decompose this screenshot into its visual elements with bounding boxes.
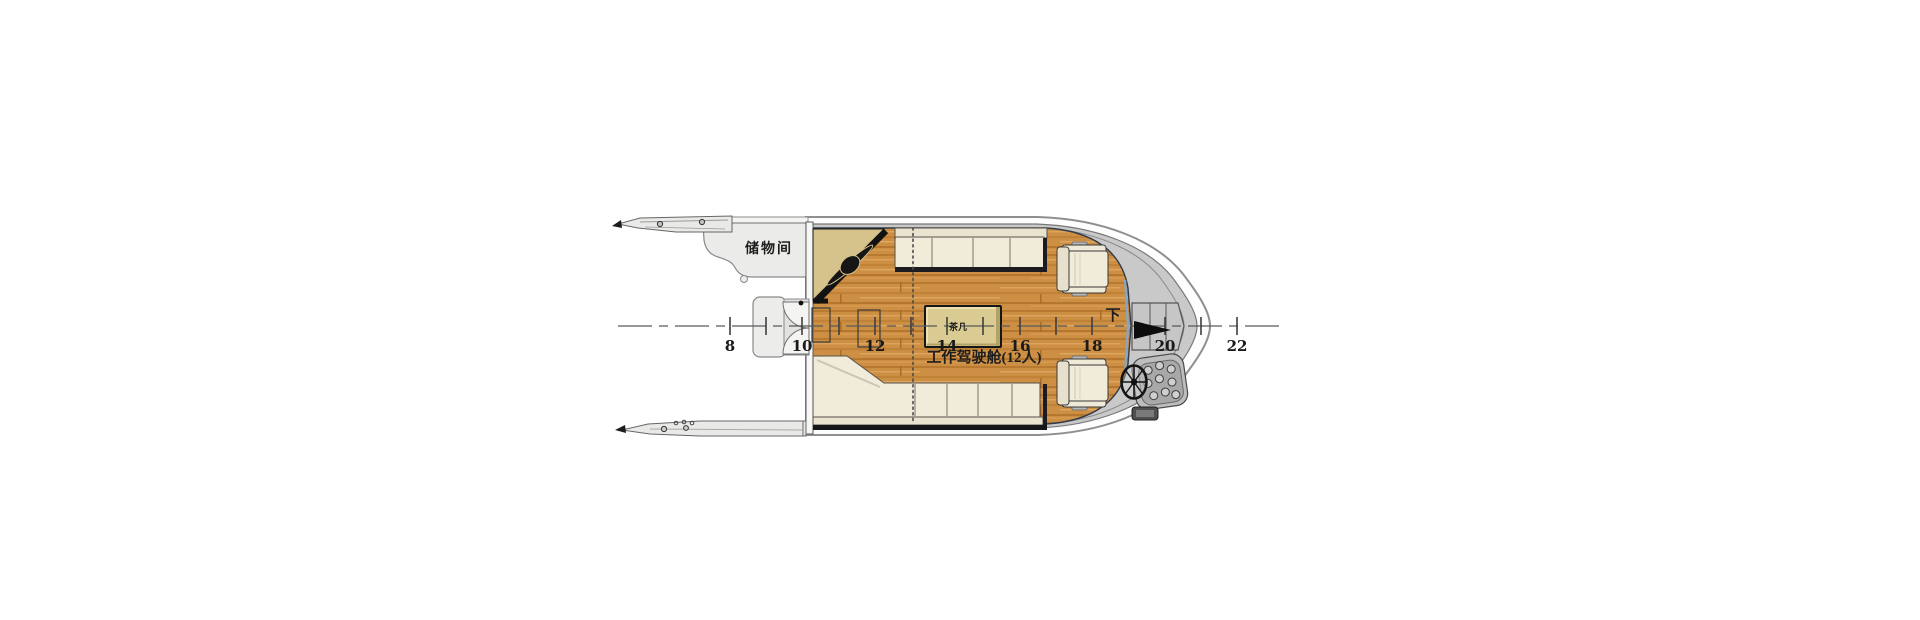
platform-cleat [741,276,748,283]
table-label: 茶几 [948,321,967,332]
station-label-18: 18 [1082,337,1103,355]
storage-room-label: 储物间 [744,240,793,257]
station-label-8: 8 [725,337,735,355]
spar-tip [612,220,622,228]
station-label-10: 10 [792,337,813,355]
down-label: 下 [1105,307,1120,324]
console-footrest [1132,407,1158,420]
helm-chair-bottom [1057,356,1108,410]
cabin-label: 工作驾驶舱(12人) [927,348,1042,366]
station-label-12: 12 [865,337,886,355]
spar-tip [615,425,626,433]
station-label-20: 20 [1155,337,1176,355]
helm-chair-top [1057,242,1108,296]
deck-plan-drawing: 8 10 12 14 16 18 20 22 储物间 工作驾驶舱(12人) 茶几… [0,0,1920,620]
helm-wheel-icon [1122,366,1147,399]
deck-plan-figure: 8 10 12 14 16 18 20 22 储物间 工作驾驶舱(12人) 茶几… [0,0,1920,620]
spar-bottom [615,420,806,436]
bench-top [895,228,1047,272]
spar-top [612,216,732,232]
station-label-22: 22 [1227,337,1248,355]
door-pivot [799,301,804,306]
door-landing [753,297,786,357]
